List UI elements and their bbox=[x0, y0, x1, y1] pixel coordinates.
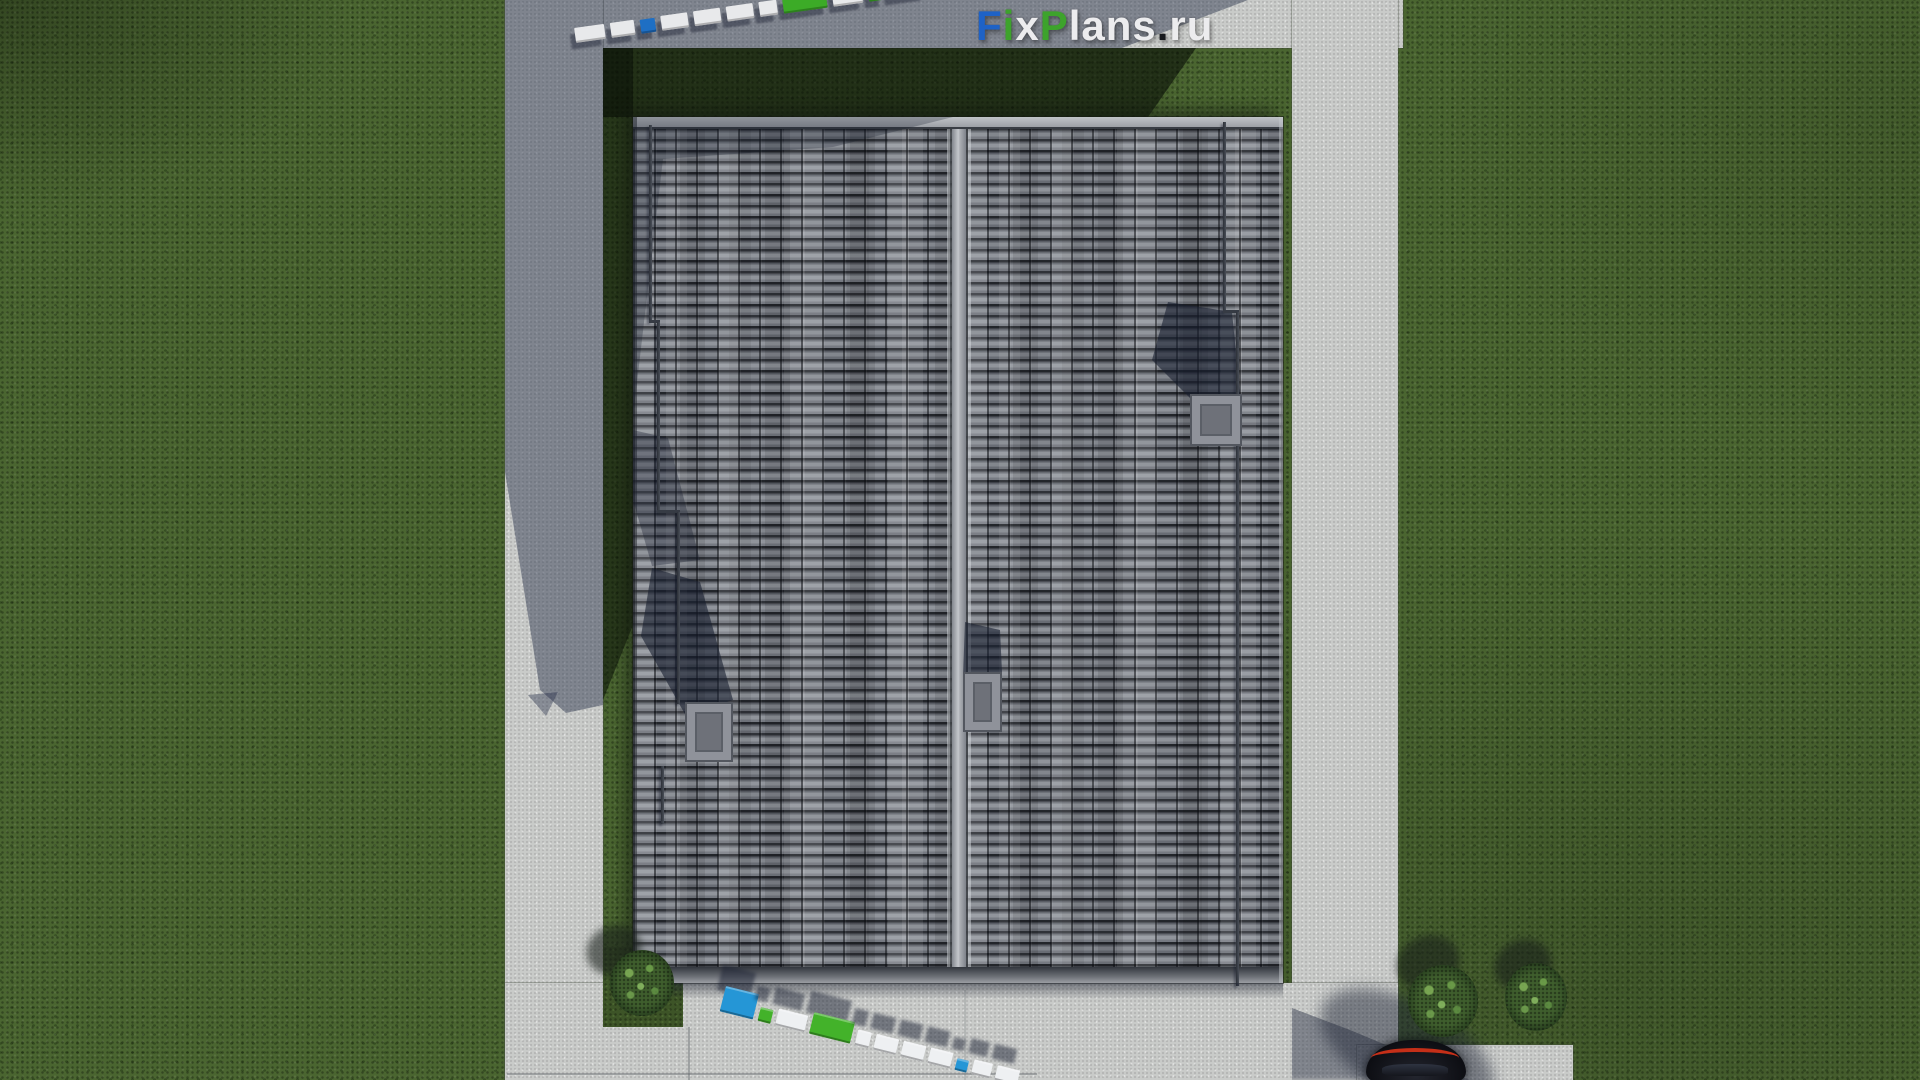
chimney-1 bbox=[685, 702, 733, 762]
roof-panel-left bbox=[633, 117, 952, 983]
house-roof bbox=[633, 117, 1283, 983]
bush bbox=[1408, 965, 1478, 1037]
watermark-letter: i bbox=[1003, 2, 1016, 49]
roof-right-edge bbox=[1279, 117, 1283, 983]
watermark-letter: lans bbox=[1069, 2, 1157, 49]
watermark-letter: F bbox=[976, 2, 1003, 49]
logo3d-block-. bbox=[640, 18, 657, 34]
roof-panel-edge bbox=[966, 117, 971, 983]
lightning-rod-segment bbox=[649, 125, 652, 322]
watermark-letter: P bbox=[1040, 2, 1069, 49]
watermark-letter: ru bbox=[1169, 2, 1213, 49]
roof-bottom-eave bbox=[633, 967, 1283, 983]
lightning-rod-segment bbox=[1223, 122, 1226, 312]
logo3d-block-l bbox=[855, 1029, 872, 1048]
roof-ridge bbox=[952, 117, 966, 983]
fixplans-watermark: FixPlans.ru bbox=[976, 2, 1213, 50]
pavement-left-path bbox=[505, 0, 603, 1080]
lightning-rod-segment bbox=[661, 766, 664, 824]
aerial-render-scene: FixPlans.ru bbox=[0, 0, 1920, 1080]
pavement-right-path bbox=[1292, 0, 1398, 1080]
lightning-rod-segment bbox=[677, 512, 680, 704]
watermark-letter: x bbox=[1015, 2, 1039, 49]
bush bbox=[610, 950, 674, 1016]
logo3d-block-u bbox=[994, 1065, 1020, 1080]
pavement-joint bbox=[507, 1073, 1037, 1075]
chimney-2 bbox=[963, 672, 1002, 732]
logo3d-block-l bbox=[758, 0, 778, 17]
logo3d-block-. bbox=[955, 1058, 970, 1073]
bush bbox=[1505, 963, 1567, 1031]
watermark-letter: . bbox=[1157, 2, 1170, 49]
chimney-3 bbox=[1190, 394, 1242, 446]
lightning-rod-segment bbox=[657, 322, 660, 512]
logo3d-block-i bbox=[758, 1007, 774, 1024]
car-rear-window bbox=[1382, 1064, 1448, 1076]
